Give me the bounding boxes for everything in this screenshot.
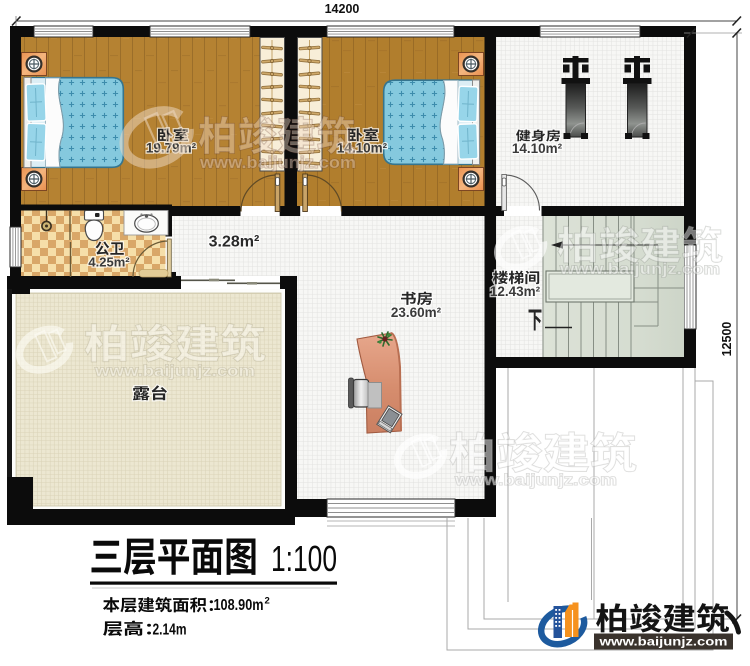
svg-text:23.60m²: 23.60m²: [391, 305, 442, 320]
svg-text:12.43m²: 12.43m²: [490, 284, 541, 299]
svg-text:2.14m: 2.14m: [153, 622, 187, 639]
svg-text:14200: 14200: [325, 2, 360, 16]
svg-text:2: 2: [265, 596, 270, 607]
svg-text:3.28m²: 3.28m²: [209, 234, 260, 251]
svg-text:14.10m²: 14.10m²: [512, 141, 563, 156]
svg-text:12500: 12500: [720, 322, 734, 357]
svg-text:www.baijunjz.com: www.baijunjz.com: [454, 472, 617, 489]
svg-text:www.baijunjz.com: www.baijunjz.com: [559, 261, 720, 278]
svg-text:www.baijunjz.com: www.baijunjz.com: [598, 637, 727, 649]
svg-text:4.25m²: 4.25m²: [88, 255, 130, 270]
svg-text:www.baijunjz.com: www.baijunjz.com: [199, 154, 356, 172]
svg-text:108.90m: 108.90m: [214, 597, 264, 614]
svg-text:1:100: 1:100: [271, 538, 337, 579]
svg-text:www.baijunjz.com: www.baijunjz.com: [94, 363, 255, 380]
